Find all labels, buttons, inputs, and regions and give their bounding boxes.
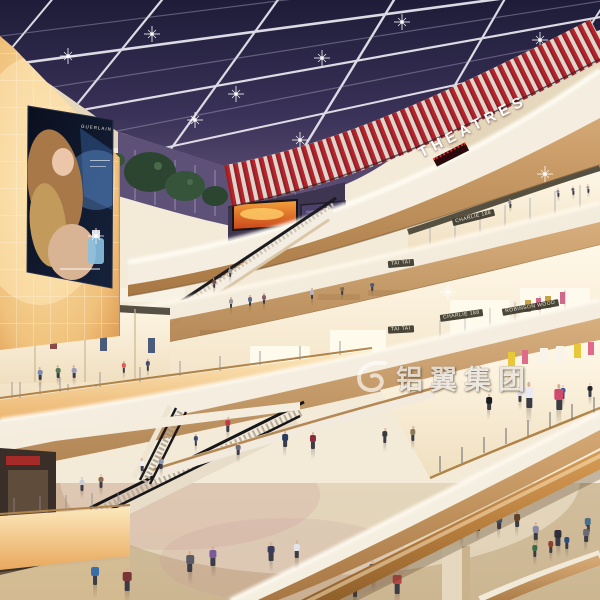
scene-canvas [0, 0, 600, 600]
mall-atrium-rendering: THEATRES GUERLAIN CHARLIE 188 TAI TAI TA… [0, 0, 600, 600]
ad-billboard [20, 106, 126, 288]
column [442, 546, 470, 600]
ad-model-face [52, 148, 74, 176]
